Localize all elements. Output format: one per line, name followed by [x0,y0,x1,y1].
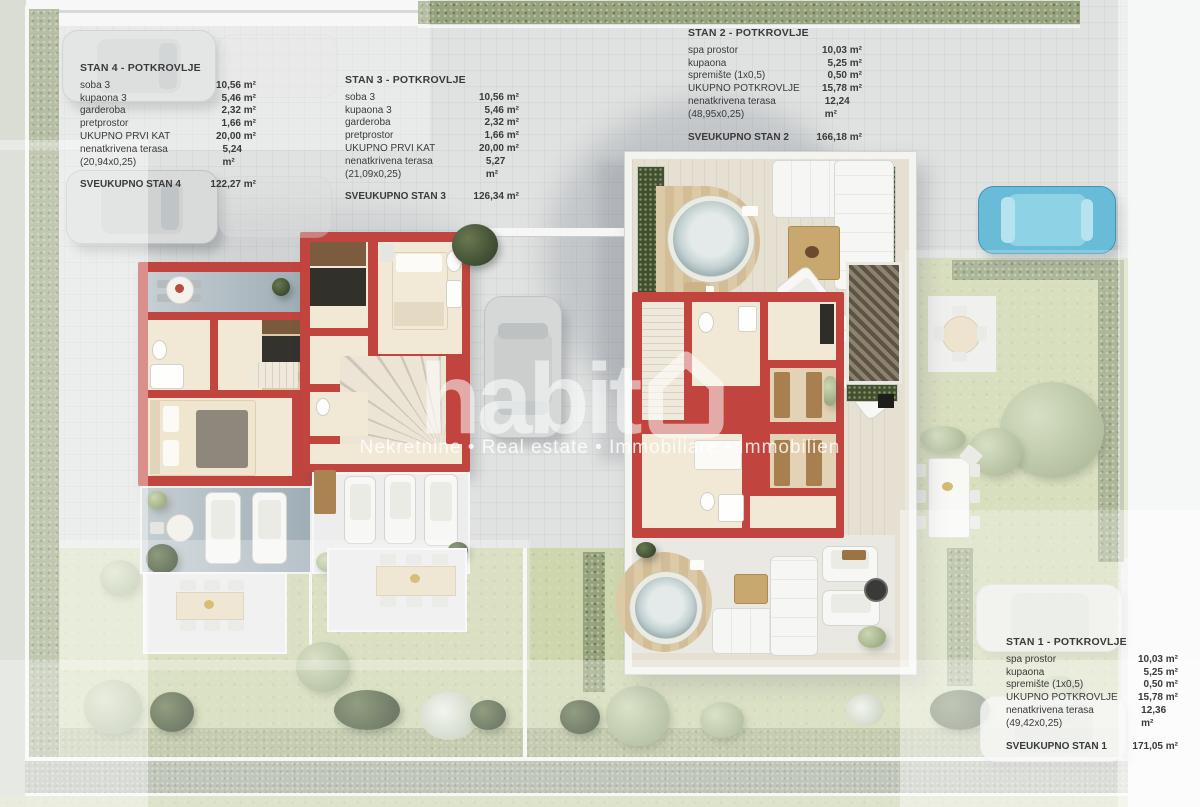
deck-plant [147,491,167,509]
unit-spec-stan-1: STAN 1 - POTKROVLJE spa prostor10,03 m² … [1006,636,1178,753]
spec-row: UKUPNO PRVI KAT20,00 m² [80,131,256,144]
garden-hedge-vertical [1098,260,1124,562]
bed-headboard [150,400,160,474]
spec-label: UKUPNO PRVI KAT [80,131,170,144]
bush [470,700,506,730]
spa-bed [694,440,742,470]
outer-grass [0,796,1200,807]
spec-row: spa prostor10,03 m² [1006,654,1178,667]
car-windshield [498,323,548,339]
pillow [163,406,179,432]
unit-title: STAN 3 - POTKROVLJE [345,74,519,87]
unit-spec-stan-2: STAN 2 - POTKROVLJE spa prostor10,03 m² … [688,27,862,144]
bush [700,702,744,738]
sink [446,280,462,308]
sun-lounger [344,476,376,544]
toilet [698,312,714,333]
sun-lounger [205,492,241,564]
spec-value: 10,03 m² [1138,654,1178,667]
spec-total-label: SVEUKUPNO STAN 4 [80,179,181,192]
garden-chair [952,352,967,362]
spec-value: 5,46 m² [222,93,256,106]
spec-label: nenatkrivena terasa (49,42x0,25) [1006,705,1141,731]
wood-bench [774,372,790,418]
pillow [396,254,442,272]
nook-plant [824,376,836,406]
spec-row: soba 310,56 m² [80,80,256,93]
unit-spec-stan-3: STAN 3 - POTKROVLJE soba 310,56 m² kupao… [345,74,519,204]
sink [738,306,757,332]
garden-hedge-vertical-2 [947,548,973,686]
sun-lounger [384,474,416,544]
bed-blanket [394,302,444,326]
spec-total-value: 126,34 m² [473,191,519,204]
round-garden-table [942,316,980,354]
center-garden-hedge [583,552,605,692]
spec-label: soba 3 [345,92,375,105]
bedroom-chair [380,244,394,262]
spec-row: garderoba2,32 m² [345,117,519,130]
closet-dark [820,304,834,344]
side-table [842,550,866,560]
spec-value: 5,27 m² [486,156,519,182]
top-margin-strip [0,0,428,26]
terrace-plant [858,626,886,648]
spec-total-label: SVEUKUPNO STAN 2 [688,132,789,145]
spec-row: nenatkrivena terasa (21,09x0,25)5,27 m² [345,156,519,182]
bathtub [718,494,744,522]
spec-row: kupaona 35,46 m² [80,93,256,106]
garden-hedge-horizontal [952,260,1122,280]
spec-value: 5,25 m² [1144,667,1178,680]
spec-row: nenatkrivena terasa (20,94x0,25)5,24 m² [80,144,256,170]
unit-title: STAN 1 - POTKROVLJE [1006,636,1178,649]
toilet [700,492,715,511]
spec-total-label: SVEUKUPNO STAN 1 [1006,741,1107,754]
toilet [316,398,330,416]
spec-total-row: SVEUKUPNO STAN 2166,18 m² [688,132,862,145]
deck-cabinet [314,470,336,514]
spec-row: kupaona 35,46 m² [345,105,519,118]
bush [84,680,142,734]
spec-value: 20,00 m² [479,143,519,156]
outdoor-sofa-chaise [770,556,818,656]
spec-row: nenatkrivena terasa (48,95x0,25)12,24 m² [688,96,862,122]
spec-value: 12,36 m² [1141,705,1178,731]
spec-label: spremište (1x0,5) [688,70,765,83]
wood-bench [806,372,822,418]
spec-value: 10,56 m² [479,92,519,105]
table-decor [204,600,214,609]
closet-wood [310,242,366,266]
bed-blanket [196,410,248,468]
spec-row: UKUPNO POTKROVLJE15,78 m² [1006,692,1178,705]
spec-row: pretprostor1,66 m² [345,130,519,143]
spec-value: 1,66 m² [485,130,519,143]
garden-chair [952,306,967,316]
stan3-room-bottom [310,444,462,464]
hot-tub-lower [630,572,702,644]
site-plan-canvas: habit Nekretnine • Real estate • Immobil… [0,0,1200,807]
bottom-hedge-row [60,728,1120,758]
balcony-plant [272,278,290,296]
spec-row: pretprostor1,66 m² [80,118,256,131]
car-rear-glass [1081,199,1093,241]
sun-lounger [424,474,458,546]
spec-value: 20,00 m² [216,131,256,144]
spec-total-value: 166,18 m² [816,132,862,145]
table-decor [942,482,953,491]
spec-value: 15,78 m² [1138,692,1178,705]
spec-total-row: SVEUKUPNO STAN 1171,05 m² [1006,741,1178,754]
unit-spec-stan-4: STAN 4 - POTKROVLJE soba 310,56 m² kupao… [80,62,256,192]
spec-value: 15,78 m² [822,83,862,96]
spec-total-row: SVEUKUPNO STAN 4122,27 m² [80,179,256,192]
spec-total-value: 171,05 m² [1132,741,1178,754]
bush [334,690,400,730]
dining-chairs [180,580,196,591]
flower-decor [175,284,184,293]
spec-label: spa prostor [1006,654,1056,667]
dining-chairs [380,554,396,565]
spec-value: 5,24 m² [223,144,256,170]
dining-chairs [380,596,396,607]
spec-value: 2,32 m² [485,117,519,130]
spec-value: 10,56 m² [216,80,256,93]
car-rear-glass [498,401,548,415]
spec-row: spremište (1x0,5)0,50 m² [1006,679,1178,692]
car-roof [1007,194,1087,246]
pergola [846,262,902,384]
spec-label: soba 3 [80,80,110,93]
spec-label: UKUPNO PRVI KAT [345,143,435,156]
bathtub [150,364,184,389]
spec-label: kupaona 3 [345,105,392,118]
towel [742,206,758,216]
spec-total-label: SVEUKUPNO STAN 3 [345,191,446,204]
spec-label: kupaona [688,58,726,71]
spec-label: nenatkrivena terasa (21,09x0,25) [345,156,486,182]
fire-pit [864,578,888,602]
garden-fence-2 [523,548,527,758]
spec-total-row: SVEUKUPNO STAN 3126,34 m² [345,191,519,204]
right-room-s [750,496,836,528]
spec-value: 0,50 m² [1144,679,1178,692]
top-boundary-wall [12,10,418,13]
towel [690,560,704,570]
table-decor [805,246,819,258]
spec-label: garderoba [80,105,126,118]
spec-row: garderoba2,32 m² [80,105,256,118]
spec-value: 12,24 m² [825,96,862,122]
stan4-stairs [252,362,298,388]
spec-value: 5,25 m² [828,58,862,71]
bush [296,642,350,692]
deck-chair [150,522,164,534]
garden-chair [934,326,944,341]
spec-label: nenatkrivena terasa (48,95x0,25) [688,96,825,122]
car-windshield [1001,197,1015,243]
spec-label: nenatkrivena terasa (20,94x0,25) [80,144,223,170]
spec-value: 1,66 m² [222,118,256,131]
unit-title: STAN 2 - POTKROVLJE [688,27,862,40]
spec-label: kupaona [1006,667,1044,680]
right-stair-room [642,302,684,420]
spec-row: UKUPNO PRVI KAT20,00 m² [345,143,519,156]
spec-row: kupaona5,25 m² [688,58,862,71]
wood-bench [774,440,790,486]
spec-label: pretprostor [345,130,393,143]
spec-row: UKUPNO POTKROVLJE15,78 m² [688,83,862,96]
bush [560,700,600,734]
spec-label: pretprostor [80,118,128,131]
left-hedge [29,9,59,758]
closet-dark [310,268,366,306]
dining-chairs [180,620,196,631]
spec-row: soba 310,56 m² [345,92,519,105]
unit-title: STAN 4 - POTKROVLJE [80,62,256,75]
spec-value: 2,32 m² [222,105,256,118]
pillow [163,440,179,466]
bush [150,692,194,732]
garage-door-line [474,228,626,237]
road-strip [25,761,1200,793]
wardrobe-dark [262,336,300,362]
car-roof [494,331,552,407]
spec-row: kupaona5,25 m² [1006,667,1178,680]
toilet [152,340,167,360]
wardrobe-wood [262,320,300,334]
driveway-tree [452,224,498,266]
top-hedge [418,1,1080,24]
spec-value: 10,03 m² [822,45,862,58]
spec-label: UKUPNO POTKROVLJE [1006,692,1118,705]
spec-value: 0,50 m² [828,70,862,83]
spec-label: spa prostor [688,45,738,58]
coffee-table-lower [734,574,768,604]
terrace-plant [636,542,656,558]
car-blue [978,186,1116,254]
outdoor-dining-table [928,458,970,538]
deck-tree [146,544,178,574]
bush [100,560,140,596]
wood-bench [806,440,822,486]
flowering-bush [846,694,884,726]
table-decor [410,574,420,583]
spec-value: 5,46 m² [485,105,519,118]
spec-row: spa prostor10,03 m² [688,45,862,58]
spec-row: spremište (1x0,5)0,50 m² [688,70,862,83]
spec-label: spremište (1x0,5) [1006,679,1083,692]
garden-chair [977,326,987,341]
deck-table [166,514,194,542]
dining-chairs-left [916,464,926,477]
spec-label: garderoba [345,117,391,130]
car-gray-center [484,296,562,438]
garden-bush [920,426,966,452]
spec-row: nenatkrivena terasa (49,42x0,25)12,36 m² [1006,705,1178,731]
spec-total-value: 122,27 m² [210,179,256,192]
spec-label: UKUPNO POTKROVLJE [688,83,800,96]
sun-lounger [252,492,287,564]
left-outer-ground [0,0,26,807]
spec-label: kupaona 3 [80,93,127,106]
utility-box [878,394,894,408]
bush [606,686,670,746]
